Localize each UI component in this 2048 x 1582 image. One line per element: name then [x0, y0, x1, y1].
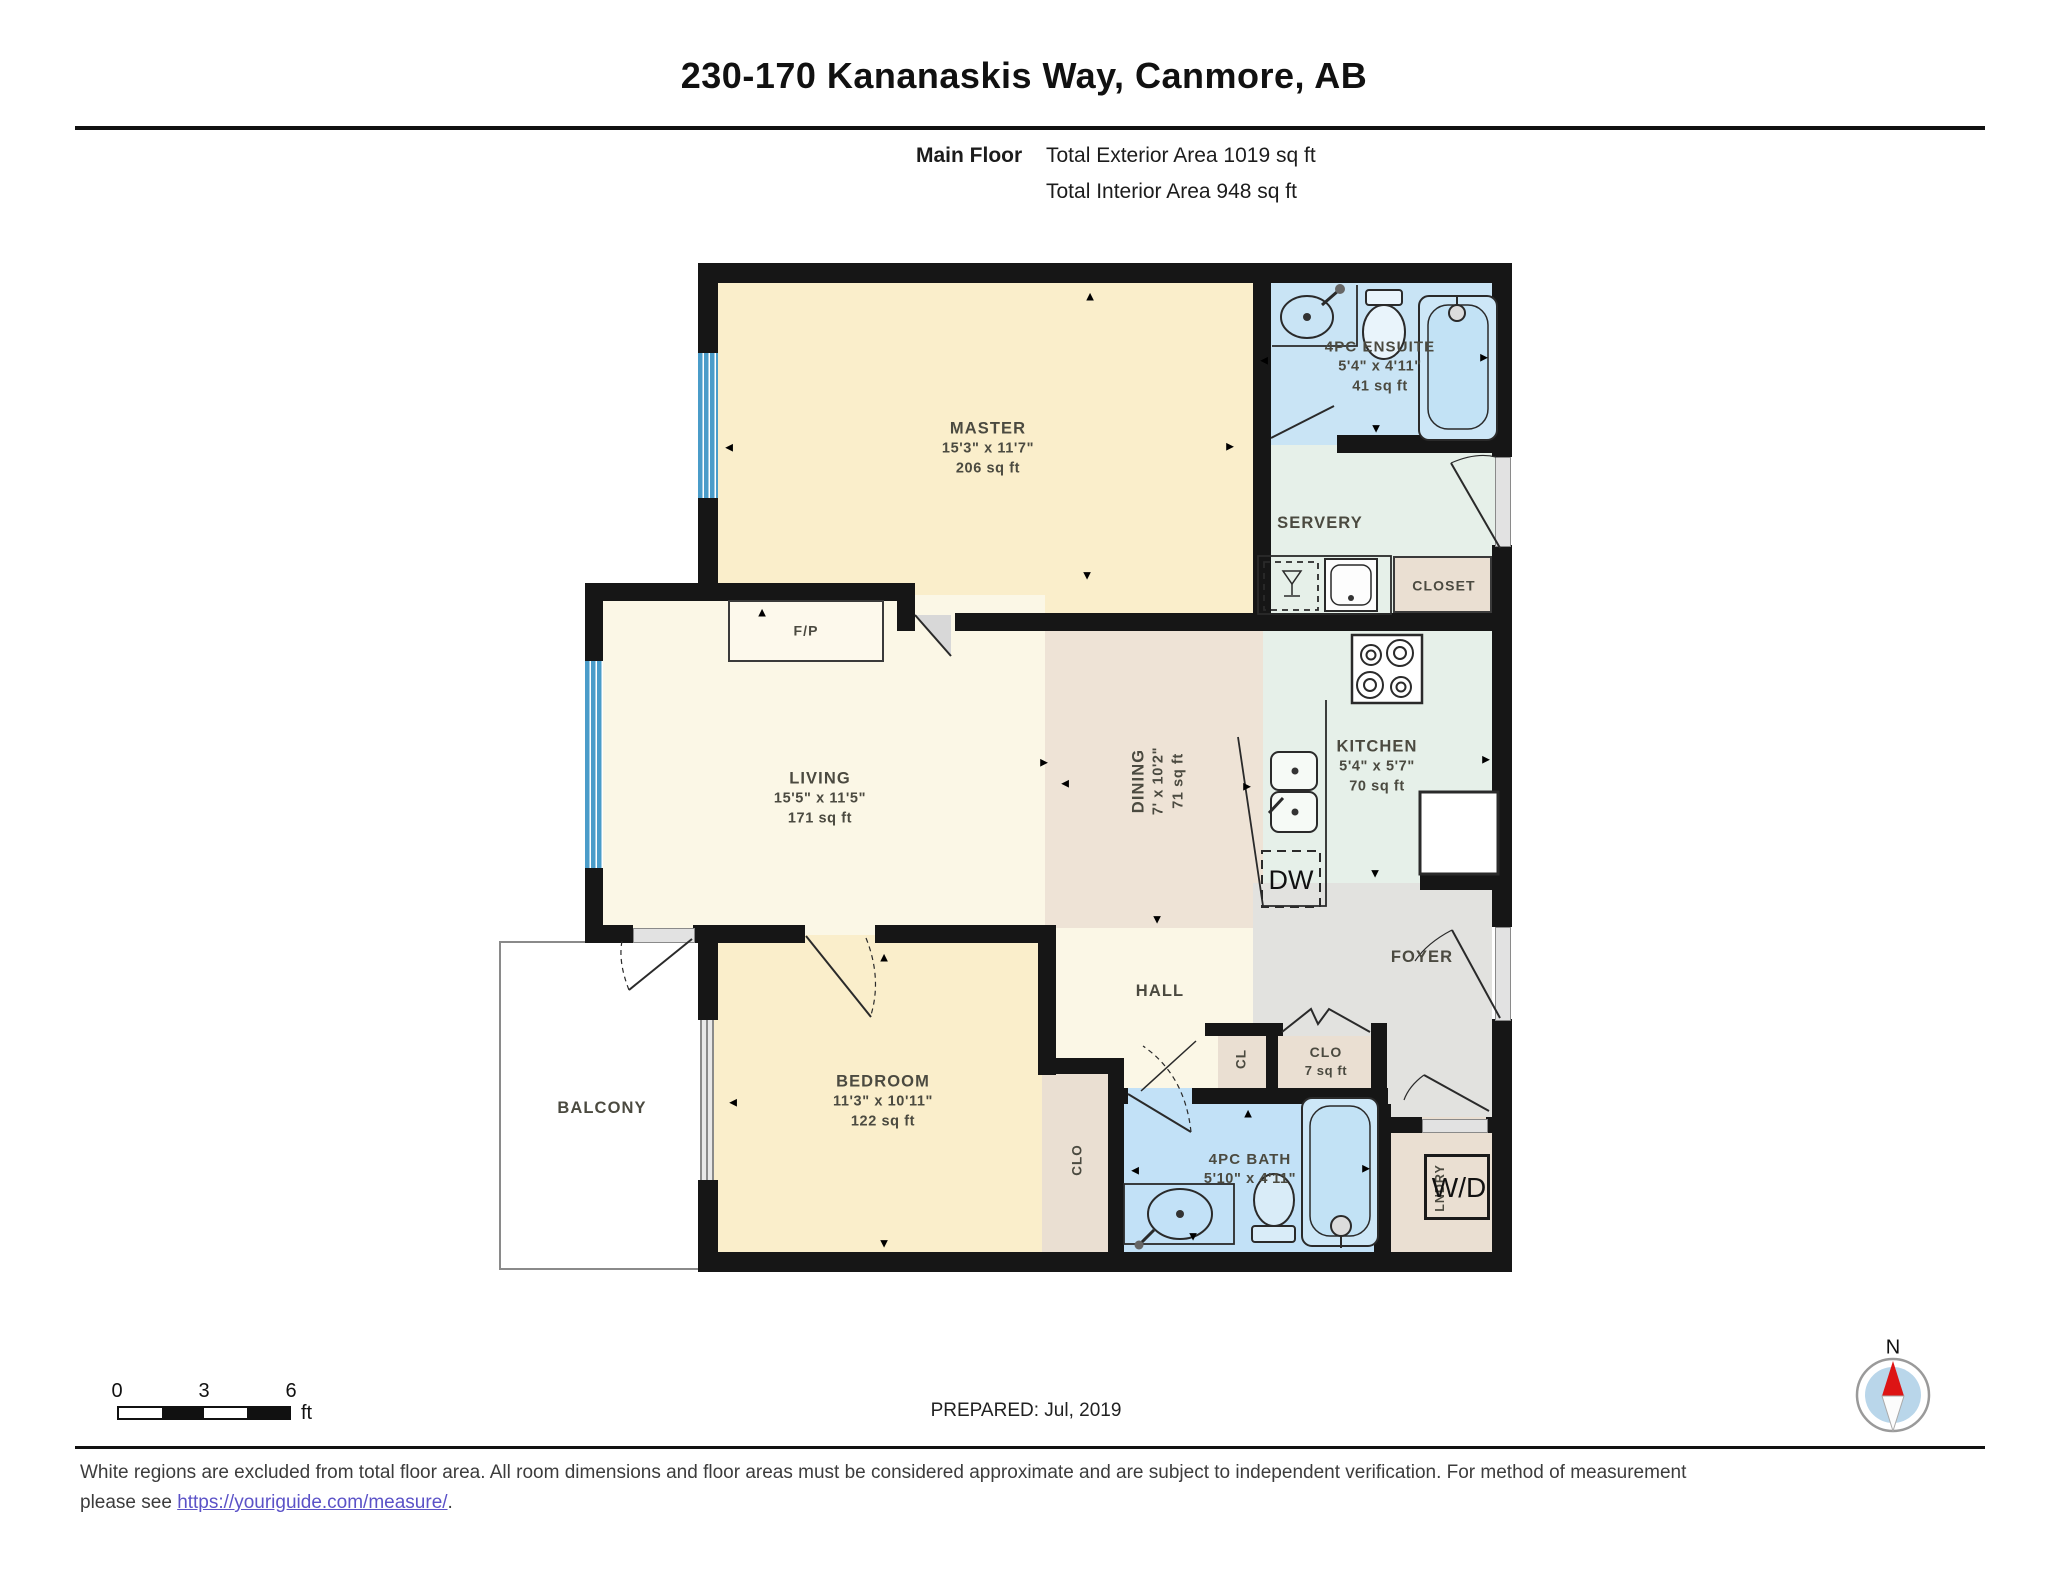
- arrow-down-icon: ▼: [1151, 912, 1164, 927]
- arrow-up-icon: ▲: [1242, 1106, 1255, 1121]
- arrow-right-icon: ►: [1038, 755, 1051, 770]
- arrow-right-icon: ►: [1480, 752, 1493, 767]
- room-label-servery: SERVERY: [1277, 512, 1363, 534]
- room-label-dining: DINING 7' x 10'2" 71 sq ft: [1127, 747, 1188, 815]
- arrow-left-icon: ◄: [1129, 1163, 1142, 1178]
- door-leaf: [806, 936, 871, 1017]
- arrow-left-icon: ◄: [723, 440, 736, 455]
- room-label-closet-hall: CLO 7 sq ft: [1305, 1043, 1347, 1079]
- arrow-up-icon: ▲: [1084, 289, 1097, 304]
- door-leaf: [1141, 1041, 1196, 1091]
- room-label-closet-small: CL: [1234, 1049, 1249, 1069]
- room-label-hall: HALL: [1136, 980, 1184, 1002]
- room-label-closet-top: CLOSET: [1412, 577, 1475, 596]
- stove-icon: [1352, 635, 1422, 703]
- bifold-door: [1282, 1009, 1370, 1032]
- room-label-ensuite: 4PC ENSUITE 5'4" x 4'11" 41 sq ft: [1325, 337, 1435, 396]
- arrow-left-icon: ◄: [1258, 353, 1271, 368]
- compass-icon: [1845, 1352, 1941, 1442]
- arrow-right-icon: ►: [1360, 1161, 1373, 1176]
- door-arc: [1404, 1075, 1424, 1100]
- bar-fridge-icon: [1264, 562, 1318, 610]
- bath-sink-icon: [1135, 1189, 1213, 1250]
- arrow-up-icon: ▲: [878, 950, 891, 965]
- arrow-down-icon: ▼: [1081, 568, 1094, 583]
- fridge-icon: [1420, 792, 1498, 874]
- door-leaf: [629, 939, 692, 990]
- room-label-bedroom: BEDROOM 11'3" x 10'11" 122 sq ft: [833, 1070, 933, 1131]
- arrow-down-icon: ▼: [1370, 421, 1383, 436]
- door-arc: [1143, 1046, 1191, 1132]
- arrow-right-icon: ►: [1224, 439, 1237, 454]
- fireplace-label: F/P: [793, 622, 818, 641]
- arrow-left-icon: ◄: [1059, 776, 1072, 791]
- room-label-living: LIVING 15'5" x 11'5" 171 sq ft: [774, 767, 866, 828]
- kitchen-sink-icon: [1269, 752, 1317, 832]
- ensuite-sink-icon: [1281, 284, 1345, 338]
- room-label-bath: 4PC BATH 5'10" x 4'11": [1204, 1150, 1296, 1190]
- arrow-right-icon: ►: [1241, 779, 1254, 794]
- room-label-balcony: BALCONY: [557, 1097, 646, 1119]
- arrow-right-icon: ►: [1478, 350, 1491, 365]
- dishwasher-label: DW: [1269, 862, 1314, 898]
- door-leaf: [1271, 406, 1334, 438]
- arrow-down-icon: ▼: [878, 1236, 891, 1251]
- room-label-kitchen: KITCHEN 5'4" x 5'7" 70 sq ft: [1336, 735, 1417, 796]
- door-arc: [621, 941, 629, 990]
- arrow-down-icon: ▼: [1369, 866, 1382, 881]
- door-leaf: [1452, 930, 1500, 1018]
- arrow-up-icon: ▲: [756, 605, 769, 620]
- door-leaf: [1128, 1094, 1191, 1132]
- fixtures-overlay: [0, 0, 2048, 1582]
- room-label-closet-bedroom: CLO: [1070, 1144, 1085, 1176]
- floor-plan-page: 230-170 Kananaskis Way, Canmore, AB Main…: [0, 0, 2048, 1582]
- arrow-left-icon: ◄: [727, 1095, 740, 1110]
- room-label-master: MASTER 15'3" x 11'7" 206 sq ft: [942, 417, 1034, 478]
- arrow-down-icon: ▼: [1187, 1229, 1200, 1244]
- door-arc: [866, 938, 875, 1015]
- door-arc: [1451, 455, 1496, 463]
- servery-sink-icon: [1325, 559, 1377, 611]
- room-label-foyer: FOYER: [1391, 946, 1453, 968]
- washer-dryer-label: W/D: [1432, 1169, 1486, 1207]
- door-leaf: [1451, 463, 1500, 548]
- door-leaf: [1424, 1075, 1489, 1111]
